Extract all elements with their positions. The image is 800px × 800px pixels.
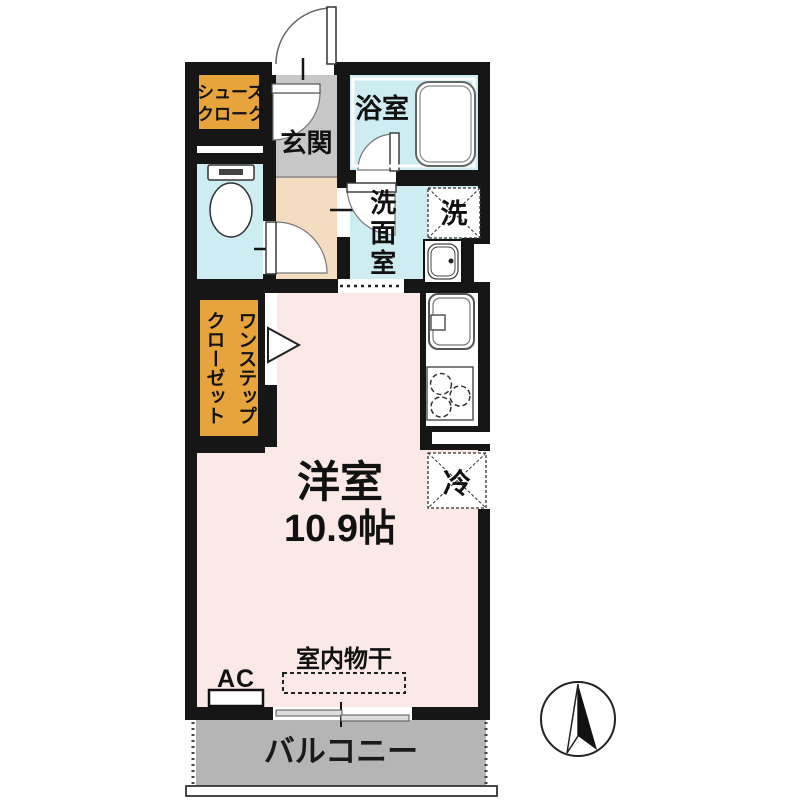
- stove-icon: [427, 367, 473, 420]
- shoe-closet-line2: クローク: [197, 105, 265, 124]
- balcony-label: バルコニー: [196, 732, 486, 772]
- front-door: [276, 7, 336, 64]
- washbasin-icon: [424, 240, 462, 283]
- floorplan-canvas: シューズ クローク 玄関 浴室 洗面室 洗 ワンステップ クローゼット 洋室 1…: [0, 0, 800, 800]
- closet-label-col1: ワンステップ: [233, 301, 258, 435]
- main-room-label: 洋室: [240, 456, 440, 512]
- drying-label: 室内物干: [283, 644, 405, 675]
- closet-label: ワンステップ クローゼット: [197, 301, 261, 435]
- entrance-label: 玄関: [276, 127, 337, 161]
- closet-label-col2: クローゼット: [201, 301, 226, 435]
- kitchen-sink-icon: [429, 294, 474, 349]
- toilet-icon: [208, 165, 254, 237]
- fridge-label: 冷: [428, 466, 486, 502]
- washroom-label: 洗面室: [364, 189, 398, 279]
- north-arrow-icon: [541, 682, 615, 756]
- shoe-closet-line1: シューズ: [197, 83, 264, 102]
- main-room-size: 10.9帖: [240, 505, 440, 554]
- bathroom-label: 浴室: [349, 92, 415, 127]
- shoe-closet-label: シューズ クローク: [197, 82, 261, 126]
- washer-label: 洗: [428, 197, 480, 232]
- ac-label: AC: [207, 663, 265, 696]
- bathtub-icon: [416, 82, 475, 166]
